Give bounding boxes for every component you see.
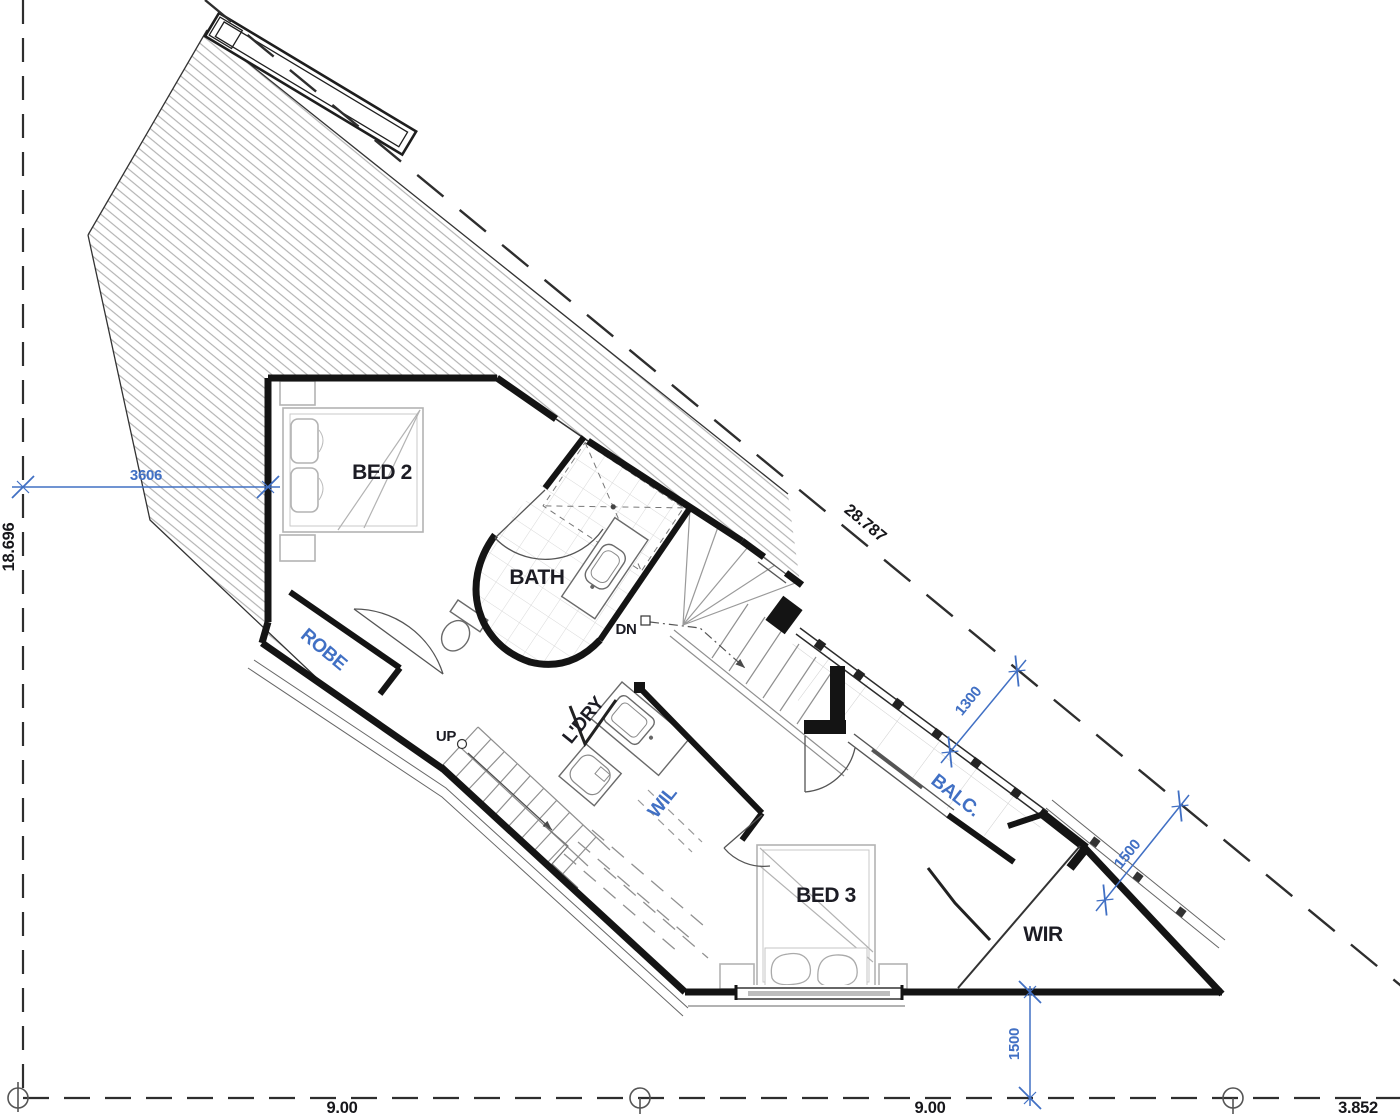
- room-label-wir: WIR: [1023, 923, 1063, 946]
- bed3: [720, 845, 907, 989]
- dim-balcony-width: 1300: [952, 683, 985, 719]
- room-label-wil: WIL: [644, 782, 682, 822]
- room-label-bed3: BED 3: [796, 884, 856, 907]
- lower-roof-hatch: [88, 30, 800, 700]
- room-labels: BED 2 BATH ROBE L'DRY WIL BED 3 WIR BALC…: [296, 461, 1063, 946]
- dim-bed2-width: 3606: [130, 467, 162, 484]
- dim-boundary-south-2: 9.00: [915, 1099, 946, 1116]
- bed3-window: [736, 985, 902, 1000]
- wir-walls: [928, 846, 1080, 988]
- boundary-dimensions: 18.696 28.787 9.00 9.00 3.852: [0, 501, 1378, 1116]
- floor-plan-sheet: 3606 1300 1500 1500 18.696 28.787 9.00 9…: [0, 0, 1400, 1116]
- floor-plan-drawing: 3606 1300 1500 1500 18.696 28.787 9.00 9…: [0, 0, 1400, 1116]
- stair-label-dn: DN: [615, 621, 636, 638]
- dim-boundary-south-1: 9.00: [327, 1099, 358, 1116]
- dim-boundary-west: 18.696: [0, 523, 18, 572]
- room-label-bed2: BED 2: [352, 461, 412, 484]
- stair-label-up: UP: [436, 728, 457, 745]
- room-label-bath: BATH: [509, 566, 564, 589]
- dim-boundary-south-3: 3.852: [1338, 1099, 1378, 1116]
- hall-roof-dashes: [564, 830, 708, 958]
- dim-setback-lower: 1500: [1006, 1028, 1023, 1060]
- dim-setback-upper: 1500: [1111, 836, 1144, 872]
- dim-boundary-northeast: 28.787: [841, 501, 890, 546]
